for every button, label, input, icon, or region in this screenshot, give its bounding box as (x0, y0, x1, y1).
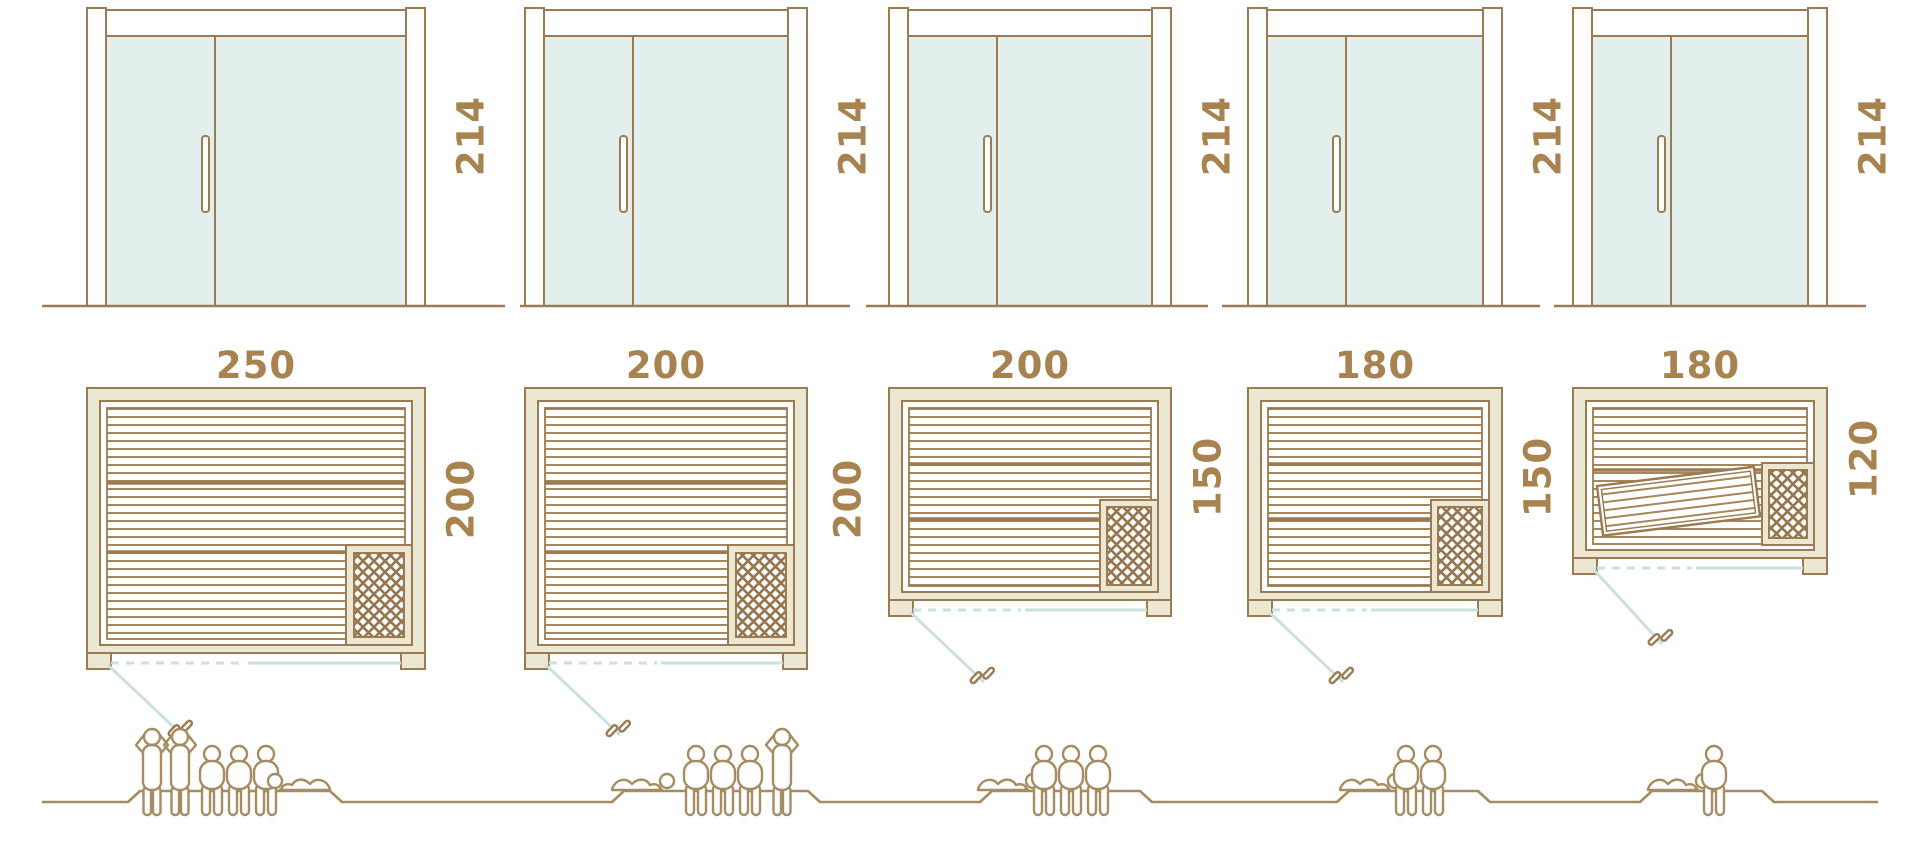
floor-plan-2 (525, 388, 807, 741)
door-lintel (106, 10, 406, 36)
person-seated-icon (227, 746, 251, 815)
floor-plan-5 (1573, 388, 1827, 650)
person-seated-icon (711, 746, 735, 815)
ground-line (42, 791, 1878, 802)
door-handle (1333, 136, 1340, 212)
person-lying-icon (1648, 774, 1710, 790)
person-standing-icon (766, 729, 798, 815)
door-swing-line (546, 665, 620, 735)
door-post-left (87, 8, 106, 306)
plan-depth-label-2: 200 (827, 459, 870, 539)
plan-door-handle-icon (970, 663, 995, 689)
wall-stub-left (1573, 558, 1597, 574)
wall-stub-right (1478, 600, 1502, 616)
person-lying-icon (1340, 774, 1402, 790)
glass-panel (1592, 36, 1808, 306)
door-post-left (1248, 8, 1267, 306)
person-seated-icon (200, 746, 224, 815)
person-lying-icon (268, 774, 330, 790)
door-lintel (908, 10, 1152, 36)
plan-width-label-3: 200 (990, 344, 1070, 387)
wall-stub-left (87, 653, 111, 669)
door-height-label-5: 214 (1852, 96, 1895, 176)
door-elevation-4 (1248, 8, 1502, 306)
plan-depth-label-5: 120 (1843, 419, 1886, 499)
capacity-group-5 (1648, 746, 1726, 815)
door-lintel (544, 10, 788, 36)
floor-plan-4 (1248, 388, 1502, 688)
door-post-left (889, 8, 908, 306)
door-elevation-5 (1573, 8, 1827, 306)
door-post-right (788, 8, 807, 306)
plan-depth-label-4: 150 (1517, 437, 1560, 517)
plan-depth-label-1: 200 (440, 459, 483, 539)
door-post-right (1808, 8, 1827, 306)
plan-door-handle-icon (1329, 663, 1354, 689)
plan-width-label-4: 180 (1335, 344, 1415, 387)
floor-plan-1 (87, 388, 425, 741)
person-seated-icon (1059, 746, 1083, 815)
heater-icon (1438, 507, 1482, 585)
door-handle (202, 136, 209, 212)
wall-stub-left (889, 600, 913, 616)
wall-stub-left (525, 653, 549, 669)
door-height-label-1: 214 (450, 96, 493, 176)
glass-panel (106, 36, 406, 306)
glass-panel (908, 36, 1152, 306)
door-swing-line (910, 612, 984, 682)
door-elevation-1 (87, 8, 425, 306)
wall-stub-right (401, 653, 425, 669)
plan-door-handle-icon (1648, 625, 1674, 650)
plan-depth-label-3: 150 (1187, 437, 1230, 517)
heater-icon (736, 553, 786, 637)
capacity-group-1 (136, 729, 330, 815)
door-handle (620, 136, 627, 212)
wall-stub-right (1803, 558, 1827, 574)
person-standing-icon (136, 729, 168, 815)
door-post-left (1573, 8, 1592, 306)
person-lying-icon (612, 774, 674, 790)
person-seated-icon (684, 746, 708, 815)
door-post-right (406, 8, 425, 306)
plan-width-label-2: 200 (626, 344, 706, 387)
door-swing-line (1269, 612, 1343, 682)
plan-width-label-5: 180 (1660, 344, 1740, 387)
floor-plan-3 (889, 388, 1171, 688)
door-height-label-4: 214 (1527, 96, 1570, 176)
person-seated-icon (738, 746, 762, 815)
heater-icon (1107, 507, 1151, 585)
person-standing-icon (164, 729, 196, 815)
door-handle (1658, 136, 1665, 212)
door-swing-line (1594, 570, 1662, 644)
door-height-label-2: 214 (832, 96, 875, 176)
heater-icon (354, 553, 404, 637)
glass-panel (544, 36, 788, 306)
plan-door-handle-icon (606, 716, 631, 742)
person-lying-icon (978, 774, 1040, 790)
door-post-left (525, 8, 544, 306)
sauna-size-diagram: 214 214 214 214 214 250 200 200 180 180 … (0, 0, 1920, 843)
capacity-group-2 (612, 729, 798, 815)
door-height-label-3: 214 (1196, 96, 1239, 176)
door-lintel (1592, 10, 1808, 36)
capacity-group-4 (1340, 746, 1445, 815)
door-elevation-3 (889, 8, 1171, 306)
person-seated-icon (1032, 746, 1056, 815)
wall-stub-left (1248, 600, 1272, 616)
door-lintel (1267, 10, 1483, 36)
wall-stub-right (783, 653, 807, 669)
person-seated-icon (1086, 746, 1110, 815)
person-seated-icon (1394, 746, 1418, 815)
person-seated-icon (1702, 746, 1726, 815)
door-post-right (1152, 8, 1171, 306)
capacity-group-3 (978, 746, 1110, 815)
person-seated-icon (1421, 746, 1445, 815)
door-swing-line (108, 665, 182, 735)
door-post-right (1483, 8, 1502, 306)
door-handle (984, 136, 991, 212)
plan-width-label-1: 250 (216, 344, 296, 387)
wall-stub-right (1147, 600, 1171, 616)
glass-panel (1267, 36, 1483, 306)
heater-icon (1769, 470, 1807, 538)
door-elevation-2 (525, 8, 807, 306)
diagram-svg: 214 214 214 214 214 250 200 200 180 180 … (0, 0, 1920, 843)
